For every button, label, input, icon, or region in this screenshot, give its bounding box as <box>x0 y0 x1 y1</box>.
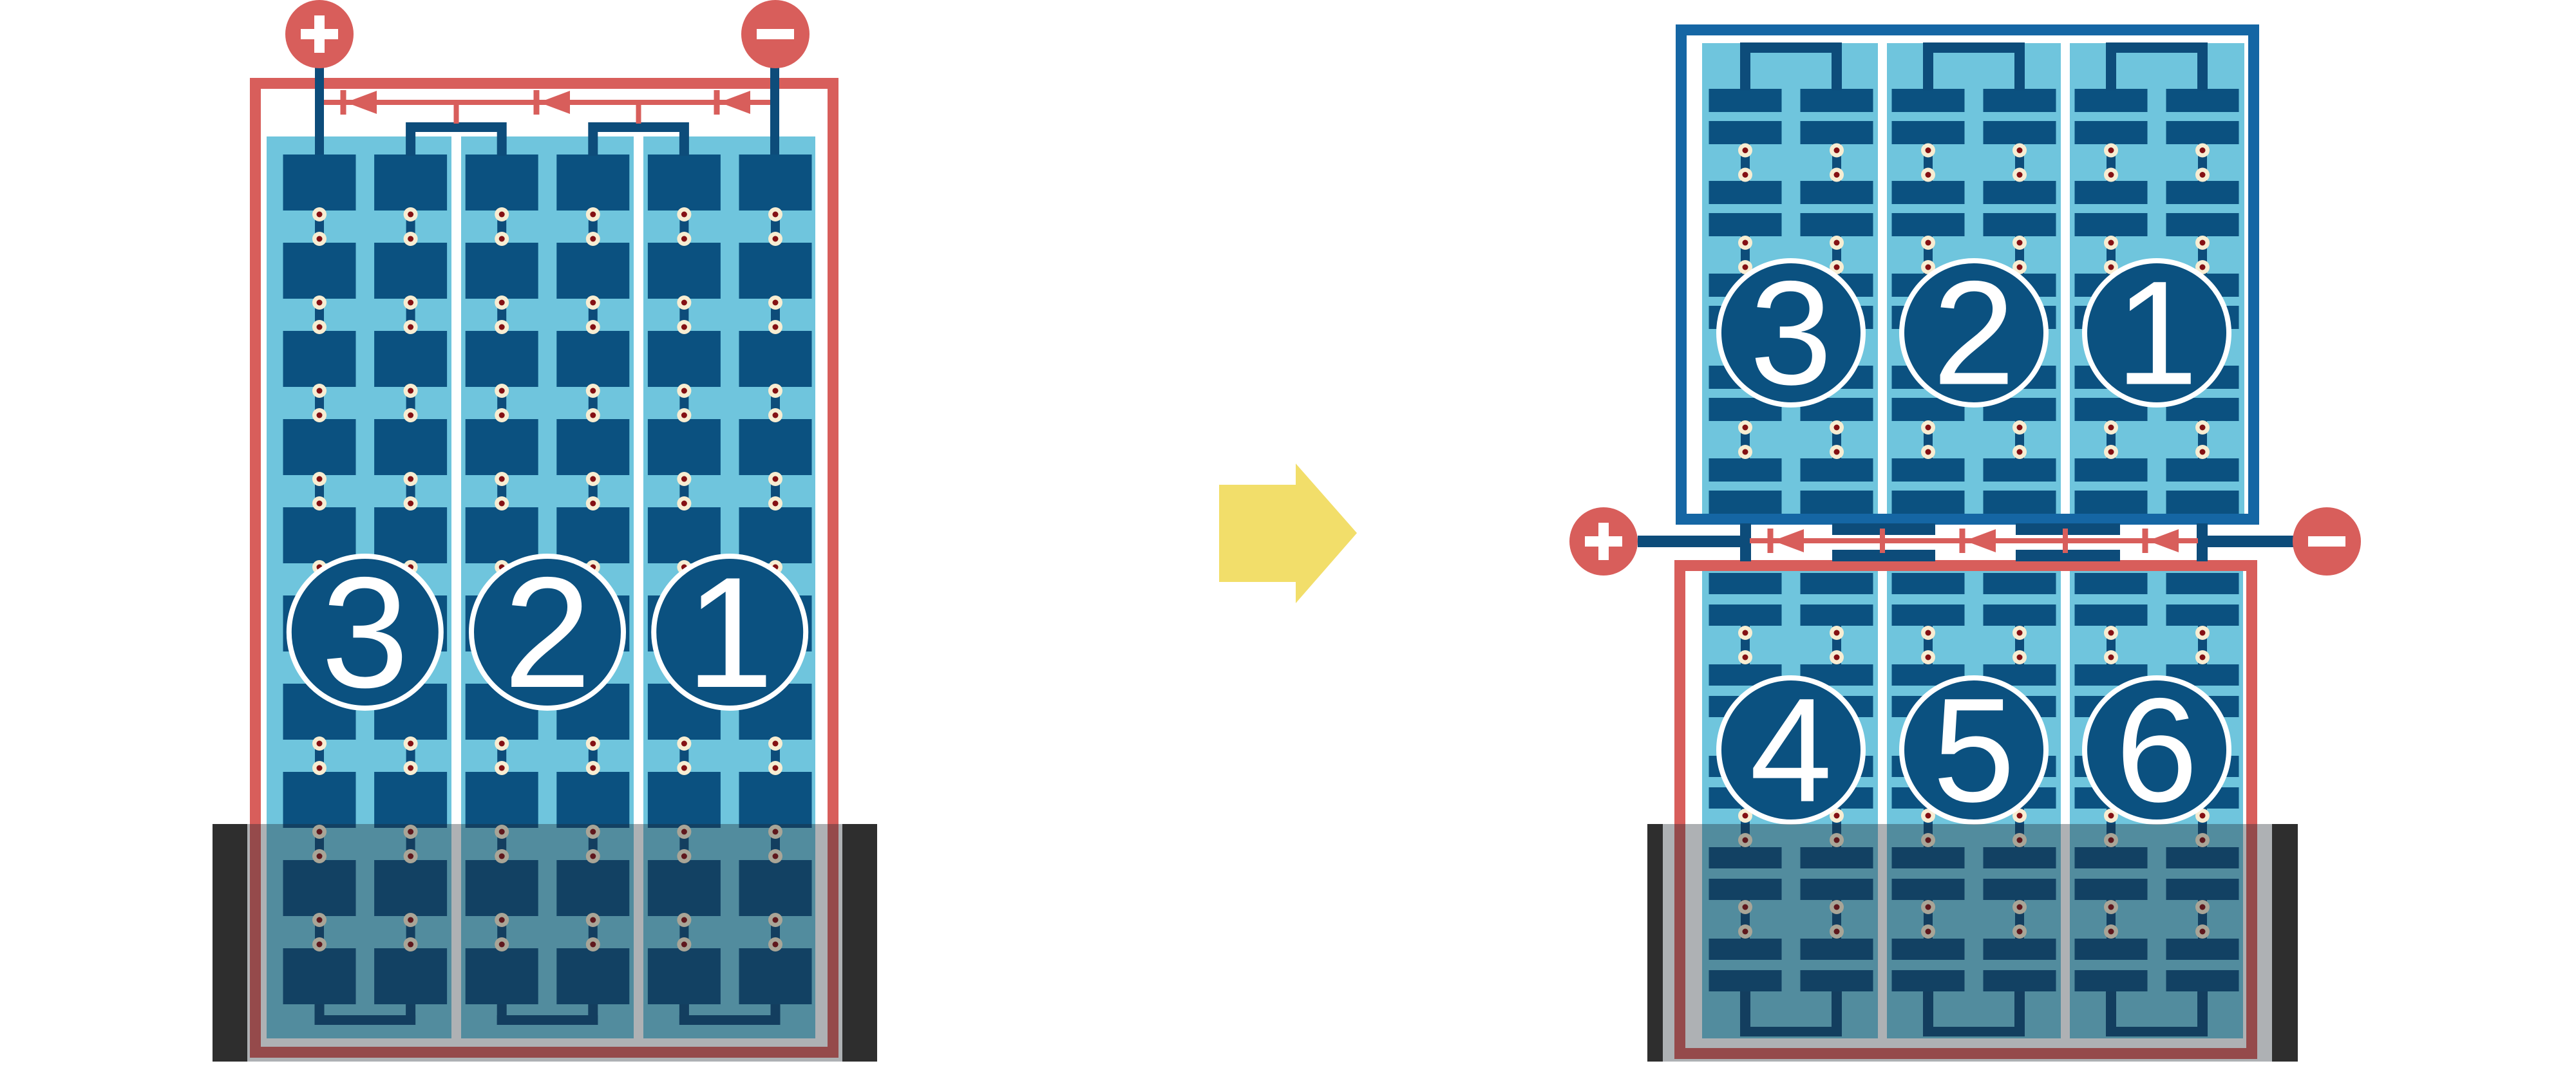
solar-cell <box>648 331 721 387</box>
solar-cell <box>739 243 812 299</box>
solder-joint-core <box>681 413 687 418</box>
solder-joint-core <box>408 300 413 306</box>
diode-cathode-bar <box>714 90 720 115</box>
solar-cell <box>466 155 538 211</box>
solder-joint-core <box>2108 449 2114 455</box>
half-cell <box>1801 181 1873 204</box>
solder-joint-core <box>2017 655 2023 660</box>
solder-joint-core <box>1834 265 1840 270</box>
string-connector-leg <box>679 132 689 156</box>
half-cell <box>1709 89 1782 112</box>
half-cell <box>1709 458 1782 482</box>
half-cell <box>1801 121 1873 144</box>
string-label-number: 1 <box>2116 250 2198 416</box>
string-label-number: 2 <box>504 544 591 720</box>
solder-joint-core <box>499 388 505 394</box>
half-cell <box>1801 604 1873 626</box>
half-cell <box>2166 604 2239 626</box>
solder-joint-core <box>408 741 413 747</box>
half-cell <box>1709 573 1782 594</box>
arrow-body <box>1219 485 1296 582</box>
string-label-number: 2 <box>1933 250 2015 416</box>
plus-icon <box>1598 523 1609 560</box>
solder-joint-core <box>499 741 505 747</box>
wire <box>2208 536 2293 547</box>
half-cell <box>1892 121 1965 144</box>
half-cell <box>1801 213 1873 236</box>
shade-edge-bar <box>1647 824 1663 1062</box>
solder-joint-core <box>317 212 323 218</box>
solder-joint-core <box>1926 147 1931 153</box>
wire <box>2197 523 2208 561</box>
string-label-number: 4 <box>1750 668 1832 833</box>
solder-joint-core <box>408 236 413 242</box>
solar-cell <box>466 243 538 299</box>
solar-cell <box>556 155 629 211</box>
solder-joint-core <box>681 476 687 482</box>
string-connector-leg <box>497 132 507 156</box>
string-connector-leg <box>588 132 598 156</box>
half-cell <box>2166 458 2239 482</box>
solder-joint-core <box>681 741 687 747</box>
solder-joint-core <box>1834 655 1840 660</box>
solder-joint-core <box>317 324 323 330</box>
solder-joint-core <box>1926 172 1931 178</box>
half-cell <box>1892 573 1965 594</box>
solar-cell <box>283 155 356 211</box>
shade-overlay <box>1647 824 2298 1062</box>
solder-joint-core <box>1834 147 1840 153</box>
half-cell <box>1801 458 1873 482</box>
solder-joint-core <box>317 501 323 507</box>
solder-joint-core <box>2200 240 2206 246</box>
solder-joint-core <box>317 765 323 771</box>
solder-joint-core <box>773 413 779 418</box>
solder-joint-core <box>1743 172 1748 178</box>
diagram-stage: 321321456 <box>0 0 2576 1068</box>
half-cell <box>2075 458 2148 482</box>
diode-arrow-icon <box>719 91 750 114</box>
solder-joint-core <box>1743 449 1748 455</box>
half-cell <box>2075 491 2148 514</box>
diode-cathode-bar <box>2143 529 2148 553</box>
wire <box>1638 536 1741 547</box>
string-connector-leg <box>2106 53 2116 90</box>
solder-joint-core <box>773 236 779 242</box>
solder-joint-core <box>590 300 596 306</box>
solar-cell <box>739 155 812 211</box>
solder-joint-core <box>2108 630 2114 636</box>
solder-joint-core <box>408 413 413 418</box>
shade-overlay <box>213 824 877 1062</box>
half-cell <box>2075 181 2148 204</box>
solder-joint-core <box>2108 265 2114 270</box>
solder-joint-core <box>773 388 779 394</box>
solder-joint-core <box>2017 630 2023 636</box>
string-connector-bar <box>588 122 689 132</box>
shade-edge-bar <box>842 824 877 1062</box>
solder-joint-core <box>499 324 505 330</box>
string-connector-leg <box>1740 53 1750 90</box>
solder-joint-core <box>1926 265 1931 270</box>
half-cell <box>1892 458 1965 482</box>
half-cell <box>1801 491 1873 514</box>
solar-cell <box>556 772 629 828</box>
half-cell <box>1709 121 1782 144</box>
string-connector-leg <box>1923 53 1933 90</box>
solder-joint-core <box>2017 449 2023 455</box>
solder-joint-core <box>317 741 323 747</box>
solder-joint-core <box>317 236 323 242</box>
solder-joint-core <box>317 388 323 394</box>
half-cell <box>1984 89 2056 112</box>
half-cell <box>2075 121 2148 144</box>
half-cell <box>1984 181 2056 204</box>
half-cell <box>1984 458 2056 482</box>
solder-joint-core <box>590 324 596 330</box>
half-cell <box>2075 213 2148 236</box>
middle-bypass-diodes <box>1750 529 2198 553</box>
right-top-module: 321 <box>1681 30 2254 520</box>
diode-arrow-icon <box>539 91 570 114</box>
diode-arrow-icon <box>346 91 377 114</box>
solder-joint-core <box>2017 813 2023 819</box>
solder-joint-core <box>1743 630 1748 636</box>
solder-joint-core <box>317 300 323 306</box>
diode-junction-tick <box>1880 529 1885 553</box>
solar-cell <box>374 772 447 828</box>
solder-joint-core <box>590 501 596 507</box>
solar-cell <box>648 772 721 828</box>
solder-joint-core <box>317 476 323 482</box>
string-label-number: 6 <box>2116 668 2198 833</box>
half-cell <box>2075 573 2148 594</box>
solder-joint-core <box>408 765 413 771</box>
half-cell <box>1892 491 1965 514</box>
solar-cell <box>466 331 538 387</box>
string-connector-leg <box>1832 53 1842 90</box>
solder-joint-core <box>2108 147 2114 153</box>
solar-cell <box>283 772 356 828</box>
solder-joint-core <box>499 476 505 482</box>
solder-joint-core <box>2108 240 2114 246</box>
solder-joint-core <box>1926 813 1931 819</box>
solder-joint-core <box>2200 630 2206 636</box>
diode-arrow-icon <box>1773 529 1804 552</box>
solder-joint-core <box>773 324 779 330</box>
plus-icon <box>314 15 325 53</box>
solder-joint-core <box>773 476 779 482</box>
solder-joint-core <box>2200 813 2206 819</box>
solder-joint-core <box>1926 630 1931 636</box>
solar-cell <box>374 331 447 387</box>
solar-cell <box>556 331 629 387</box>
solar-cell <box>648 243 721 299</box>
solder-joint-core <box>2200 425 2206 431</box>
solder-joint-core <box>590 741 596 747</box>
string-label-number: 1 <box>686 544 773 720</box>
half-cell <box>1892 89 1965 112</box>
solar-cell <box>283 419 356 475</box>
half-cell <box>1984 121 2056 144</box>
solar-cell <box>466 419 538 475</box>
positive-terminal-left-module <box>285 0 354 68</box>
solder-joint-core <box>2200 655 2206 660</box>
string-connector-bar <box>1740 42 1842 53</box>
half-cell <box>1984 573 2056 594</box>
solar-cell <box>374 419 447 475</box>
solder-joint-core <box>408 324 413 330</box>
string-label-number: 5 <box>1933 668 2015 833</box>
solar-cell <box>283 243 356 299</box>
positive-terminal-right-modules <box>1569 507 1638 576</box>
solder-joint-core <box>773 765 779 771</box>
solar-cell <box>739 772 812 828</box>
solder-joint-core <box>1743 265 1748 270</box>
solder-joint-core <box>2017 265 2023 270</box>
solar-cell <box>283 331 356 387</box>
solar-cell <box>556 419 629 475</box>
solder-joint-core <box>1926 449 1931 455</box>
solar-cell <box>739 419 812 475</box>
solar-cell <box>648 419 721 475</box>
half-cell <box>2166 213 2239 236</box>
solder-joint-core <box>1743 813 1748 819</box>
solder-joint-core <box>2200 147 2206 153</box>
half-cell <box>2166 121 2239 144</box>
solder-joint-core <box>681 388 687 394</box>
solder-joint-core <box>2108 813 2114 819</box>
solder-joint-core <box>2108 172 2114 178</box>
solar-cell <box>466 772 538 828</box>
solder-joint-core <box>499 765 505 771</box>
string-connector-bar <box>1923 42 2025 53</box>
string-connector-leg <box>406 132 415 156</box>
solder-joint-core <box>773 741 779 747</box>
solder-joint-core <box>590 212 596 218</box>
half-cell <box>2075 604 2148 626</box>
half-cell <box>1709 213 1782 236</box>
solder-joint-core <box>1834 172 1840 178</box>
solder-joint-core <box>1926 425 1931 431</box>
half-cell <box>1984 604 2056 626</box>
half-cell <box>2166 573 2239 594</box>
half-cell <box>1709 491 1782 514</box>
solder-joint-core <box>2017 172 2023 178</box>
solder-joint-core <box>2017 425 2023 431</box>
half-cell <box>1801 89 1873 112</box>
half-cell <box>1892 604 1965 626</box>
solder-joint-core <box>2200 172 2206 178</box>
solder-joint-core <box>773 501 779 507</box>
shade-edge-bar <box>213 824 247 1062</box>
string-connector-bar <box>406 122 507 132</box>
diode-junction-drop <box>454 102 459 124</box>
solder-joint-core <box>2200 265 2206 270</box>
half-cell <box>1709 604 1782 626</box>
half-cell <box>1984 213 2056 236</box>
solder-joint-core <box>773 300 779 306</box>
solder-joint-core <box>681 212 687 218</box>
wire <box>1740 523 1751 561</box>
half-cell <box>1984 491 2056 514</box>
wire <box>315 64 324 155</box>
solder-joint-core <box>1743 655 1748 660</box>
solder-joint-core <box>681 300 687 306</box>
solar-cell <box>374 155 447 211</box>
solder-joint-core <box>408 212 413 218</box>
solder-joint-core <box>773 212 779 218</box>
solder-joint-core <box>408 501 413 507</box>
negative-terminal-right-modules <box>2293 507 2361 576</box>
string-label-number: 3 <box>1750 250 1832 416</box>
solar-module-shading-bypass-diode-diagram: 321321456 <box>0 0 2576 1068</box>
solder-joint-core <box>499 413 505 418</box>
half-cell <box>2166 181 2239 204</box>
shade-left-module <box>213 824 877 1062</box>
solder-joint-core <box>499 212 505 218</box>
solder-joint-core <box>590 388 596 394</box>
solder-joint-core <box>2200 449 2206 455</box>
half-cell <box>2166 491 2239 514</box>
solar-cell <box>648 155 721 211</box>
arrow-head <box>1296 464 1357 603</box>
diode-cathode-bar <box>1768 529 1774 553</box>
wire <box>770 64 779 155</box>
diode-junction-tick <box>2063 529 2068 553</box>
negative-terminal-left-module <box>741 0 810 68</box>
diode-cathode-bar <box>1960 529 1965 553</box>
solar-cell <box>374 243 447 299</box>
solder-joint-core <box>590 765 596 771</box>
half-cell <box>1801 573 1873 594</box>
half-cell <box>1892 181 1965 204</box>
solder-joint-core <box>1926 655 1931 660</box>
solar-cell <box>739 331 812 387</box>
minus-icon <box>757 29 794 39</box>
diode-junction-drop <box>636 102 641 124</box>
solder-joint-core <box>1834 813 1840 819</box>
solder-joint-core <box>1834 449 1840 455</box>
string-connector-leg <box>2014 53 2025 90</box>
solder-joint-core <box>2017 147 2023 153</box>
solder-joint-core <box>1926 240 1931 246</box>
solder-joint-core <box>681 324 687 330</box>
string-label-number: 3 <box>321 544 409 720</box>
solder-joint-core <box>2108 425 2114 431</box>
solder-joint-core <box>408 476 413 482</box>
solder-joint-core <box>681 765 687 771</box>
string-connector-leg <box>2197 53 2208 90</box>
solder-joint-core <box>1743 240 1748 246</box>
string-connector-bar <box>2106 42 2208 53</box>
left-module-bypass-diodes <box>324 90 770 124</box>
half-cell <box>2166 89 2239 112</box>
diode-cathode-bar <box>534 90 540 115</box>
half-cell <box>1709 181 1782 204</box>
solder-joint-core <box>499 501 505 507</box>
solar-cell <box>556 243 629 299</box>
diode-cathode-bar <box>341 90 346 115</box>
solder-joint-core <box>590 413 596 418</box>
solder-joint-core <box>590 476 596 482</box>
minus-icon <box>2308 536 2345 547</box>
solder-joint-core <box>681 236 687 242</box>
solder-joint-core <box>590 236 596 242</box>
solder-joint-core <box>1834 240 1840 246</box>
diode-arrow-icon <box>2148 529 2179 552</box>
diode-arrow-icon <box>1965 529 1996 552</box>
solder-joint-core <box>499 300 505 306</box>
solder-joint-core <box>2017 240 2023 246</box>
solder-joint-core <box>2108 655 2114 660</box>
solder-joint-core <box>499 236 505 242</box>
solder-joint-core <box>1743 147 1748 153</box>
solder-joint-core <box>681 501 687 507</box>
solder-joint-core <box>408 388 413 394</box>
solder-joint-core <box>317 413 323 418</box>
solder-joint-core <box>1834 630 1840 636</box>
shade-edge-bar <box>2272 824 2298 1062</box>
half-cell <box>2075 89 2148 112</box>
half-cell <box>1892 213 1965 236</box>
solder-joint-core <box>1834 425 1840 431</box>
solder-joint-core <box>1743 425 1748 431</box>
transform-arrow <box>1219 464 1357 603</box>
shade-right-module <box>1647 824 2298 1062</box>
